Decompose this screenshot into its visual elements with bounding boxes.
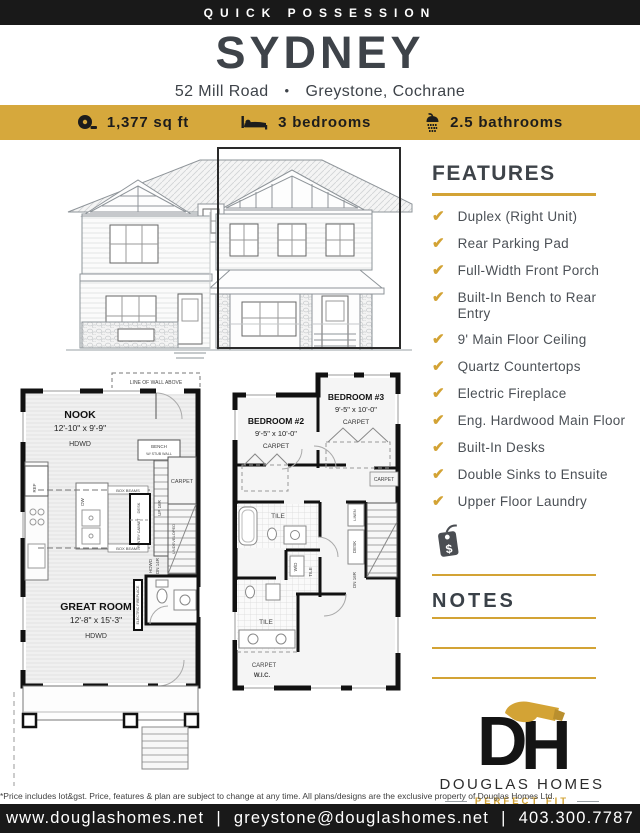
contact-separator: |: [501, 809, 507, 828]
tape-measure-icon: [77, 114, 98, 131]
main-bath-tile-label: TILE: [271, 513, 285, 520]
great-room-name: GREAT ROOM: [60, 601, 132, 613]
right-unit-main-floor: [216, 294, 372, 350]
check-icon: ✔: [432, 236, 445, 252]
right-unit-upper-floor: [216, 214, 372, 270]
nook-name: NOOK: [64, 409, 96, 421]
ref-label: REF: [32, 483, 37, 492]
feature-item: ✔Built-In Desks: [432, 440, 630, 457]
wd-label: W/D: [293, 562, 298, 571]
flyer-page: QUICK POSSESSION SYDNEY 52 Mill Road•Gre…: [0, 0, 640, 833]
desk-label-upper: DESK: [352, 541, 357, 553]
powder-room: [146, 576, 198, 624]
up-16r-label: UP 16R: [157, 499, 162, 515]
undeveloped-area: UNDEVELOPED: [168, 504, 196, 574]
bedroom3-name: BEDROOM #3: [328, 392, 384, 402]
address-line: 52 Mill Road•Greystone, Cochrane: [0, 83, 640, 101]
feature-item: ✔Quartz Countertops: [432, 359, 630, 376]
upper-floor-plan: BEDROOM #2 9'-5" x 10'-0" CARPET BEDROOM…: [226, 362, 414, 696]
email-link[interactable]: greystone@douglashomes.net: [234, 809, 489, 828]
feature-item: ✔Eng. Hardwood Main Floor: [432, 413, 630, 430]
feature-item: ✔Built-In Bench to Rear Entry: [432, 290, 630, 322]
contact-separator: |: [216, 809, 222, 828]
price-disclaimer: *Price includes lot&gst. Price, features…: [0, 791, 640, 801]
dw-label: DW: [80, 498, 85, 506]
stats-bar: 1,377 sq ft 3 bedrooms 2.5: [0, 105, 640, 140]
address-bullet: •: [285, 83, 290, 98]
fireplace-label: ELECTRIC FIREPLACE: [136, 585, 140, 624]
price-block: $: [432, 524, 630, 576]
ensuite-shower: [266, 584, 280, 600]
street-address: 52 Mill Road: [175, 83, 269, 100]
ensuite-bathroom: TILE: [237, 580, 296, 650]
hall-carpet-label: CARPET: [374, 477, 394, 483]
check-icon: ✔: [432, 413, 445, 429]
check-icon: ✔: [432, 263, 445, 279]
bench-label-1: BENCH: [151, 444, 167, 449]
stat-bathrooms-label: 2.5 bathrooms: [450, 114, 563, 131]
house-elevation-drawing: [60, 146, 420, 360]
logo-name: DOUGLAS HOMES: [432, 776, 612, 793]
main-bath-toilet: [268, 528, 277, 540]
stat-bedrooms-label: 3 bedrooms: [278, 114, 371, 131]
phone-link[interactable]: 403.300.7787: [519, 809, 634, 828]
pantry-label: PANTRY CABINET: [137, 518, 141, 547]
price-tag-icon: $: [432, 524, 464, 560]
feature-item: ✔Electric Fireplace: [432, 386, 630, 403]
page-title: SYDNEY: [0, 27, 640, 79]
dn-hdwd-label: HDWD: [148, 558, 153, 573]
check-icon: ✔: [432, 209, 445, 225]
front-porch: [14, 686, 198, 786]
dh-monogram: D H: [447, 699, 597, 773]
feature-item: ✔Double Sinks to Ensuite: [432, 467, 630, 484]
check-icon: ✔: [432, 290, 445, 306]
feature-item: ✔Upper Floor Laundry: [432, 494, 630, 511]
bedroom2-name: BEDROOM #2: [248, 416, 304, 426]
great-room-floor: HDWD: [85, 633, 107, 640]
box-beams-label-1: BOX BEAMS: [116, 488, 140, 493]
bedroom2-dims: 9'-5" x 10'-0": [255, 429, 297, 438]
check-icon: ✔: [432, 386, 445, 402]
check-icon: ✔: [432, 359, 445, 375]
bench-label-2: W/ STUB WALL: [146, 452, 172, 456]
main-floor-plan: LINE OF WALL ABOVE NOOK 12'-10" x 9'-9": [8, 362, 220, 792]
feature-item: ✔9' Main Floor Ceiling: [432, 332, 630, 349]
features-underline: [432, 193, 596, 196]
nook-dims: 12'-10" x 9'-9": [54, 423, 106, 433]
check-icon: ✔: [432, 494, 445, 510]
wic-label: W.I.C.: [254, 673, 271, 679]
features-list: ✔Duplex (Right Unit) ✔Rear Parking Pad ✔…: [432, 209, 630, 511]
dn-16r-label: DN 16R: [352, 571, 357, 588]
notes-underline: [432, 617, 596, 619]
feature-item: ✔Rear Parking Pad: [432, 236, 630, 253]
quick-possession-banner: QUICK POSSESSION: [0, 0, 640, 25]
feature-item: ✔Full-Width Front Porch: [432, 263, 630, 280]
bedroom3-dims: 9'-5" x 10'-0": [335, 405, 377, 414]
stat-bathrooms: 2.5 bathrooms: [423, 113, 563, 133]
nook-floor: HDWD: [69, 441, 91, 448]
bed-icon: [241, 115, 269, 130]
desk-label: DESK: [136, 502, 141, 513]
features-column: FEATURES ✔Duplex (Right Unit) ✔Rear Park…: [432, 162, 630, 807]
electric-fireplace: ELECTRIC FIREPLACE: [134, 580, 142, 630]
price-write-in-line: [432, 574, 596, 576]
wall-note-label: LINE OF WALL ABOVE: [130, 380, 183, 386]
notes-write-in-line-1: [432, 647, 596, 649]
banner-text: QUICK POSSESSION: [204, 6, 437, 20]
carpet-landing: CARPET: [168, 457, 196, 504]
stat-bedrooms: 3 bedrooms: [241, 114, 371, 131]
hammer-icon: [505, 701, 565, 722]
feature-item: ✔Duplex (Right Unit): [432, 209, 630, 226]
stairs-up: UP 16R: [154, 460, 168, 556]
bedroom2-floor: CARPET: [263, 443, 289, 450]
ensuite-tile-label: TILE: [259, 619, 273, 626]
great-room-dims: 12'-8" x 15'-3": [70, 615, 122, 625]
landing-carpet-label: CARPET: [171, 479, 194, 485]
website-link[interactable]: www.douglashomes.net: [6, 809, 204, 828]
main-bathroom: TILE: [237, 504, 318, 548]
check-icon: ✔: [432, 440, 445, 456]
stat-sqft: 1,377 sq ft: [77, 114, 189, 131]
notes-write-in-line-2: [432, 677, 596, 679]
bedroom3-floor: CARPET: [343, 419, 369, 426]
ensuite-toilet: [246, 586, 255, 598]
dn-14r-label: DN 14R: [155, 557, 160, 574]
porch-roof: [208, 270, 384, 294]
wic-carpet-label: CARPET: [252, 663, 277, 669]
check-icon: ✔: [432, 332, 445, 348]
notes-heading: NOTES: [432, 590, 630, 613]
features-heading: FEATURES: [432, 162, 630, 186]
shower-icon: [423, 113, 441, 133]
stairs-down: [367, 503, 397, 577]
check-icon: ✔: [432, 467, 445, 483]
undeveloped-label: UNDEVELOPED: [171, 524, 176, 554]
laundry-tile-label: TILE: [308, 567, 313, 577]
linen-label: LINEN: [353, 509, 357, 520]
left-unit-upper-floor: [80, 216, 212, 281]
stat-sqft-label: 1,377 sq ft: [107, 114, 189, 131]
contact-bar: www.douglashomes.net | greystone@douglas…: [0, 804, 640, 833]
community: Greystone, Cochrane: [306, 83, 466, 100]
left-unit-main-floor: [80, 281, 210, 358]
